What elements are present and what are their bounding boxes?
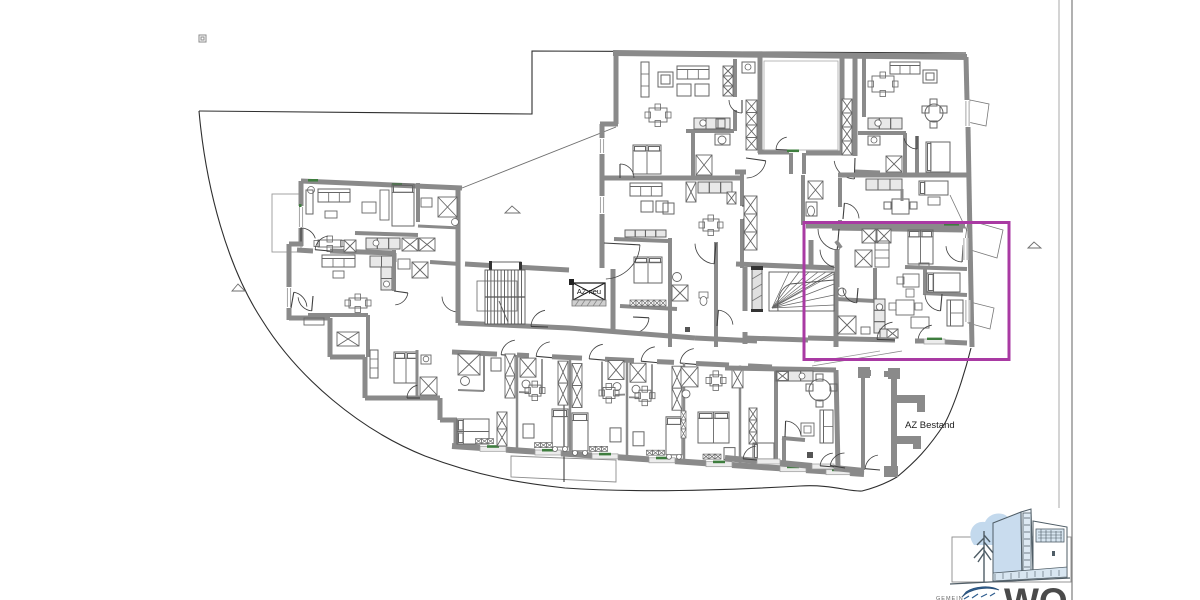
- svg-text:WO: WO: [1004, 581, 1068, 600]
- svg-text:AZ Bestand: AZ Bestand: [905, 420, 955, 431]
- svg-text:GEMEIN: GEMEIN: [936, 596, 964, 600]
- svg-text:AZ neu: AZ neu: [577, 287, 601, 296]
